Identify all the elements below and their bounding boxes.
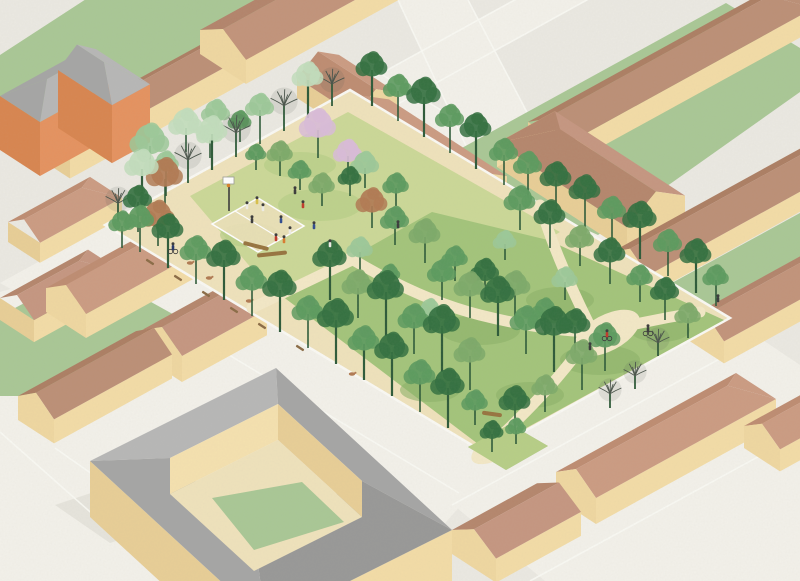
person — [589, 342, 592, 350]
person — [717, 294, 720, 302]
person — [256, 196, 259, 204]
person — [289, 226, 292, 234]
person — [251, 215, 254, 223]
person — [280, 215, 283, 223]
person — [275, 233, 278, 241]
person — [397, 220, 400, 228]
person — [283, 235, 286, 243]
person — [302, 200, 305, 208]
urban-park-axonometric-illustration — [0, 0, 800, 581]
person — [246, 201, 249, 209]
basketball-rim — [227, 184, 231, 188]
person — [262, 203, 265, 211]
basketball-backboard — [223, 177, 234, 184]
person — [329, 239, 332, 247]
person — [313, 221, 316, 229]
person — [294, 186, 297, 194]
illustration-stage — [0, 0, 800, 581]
